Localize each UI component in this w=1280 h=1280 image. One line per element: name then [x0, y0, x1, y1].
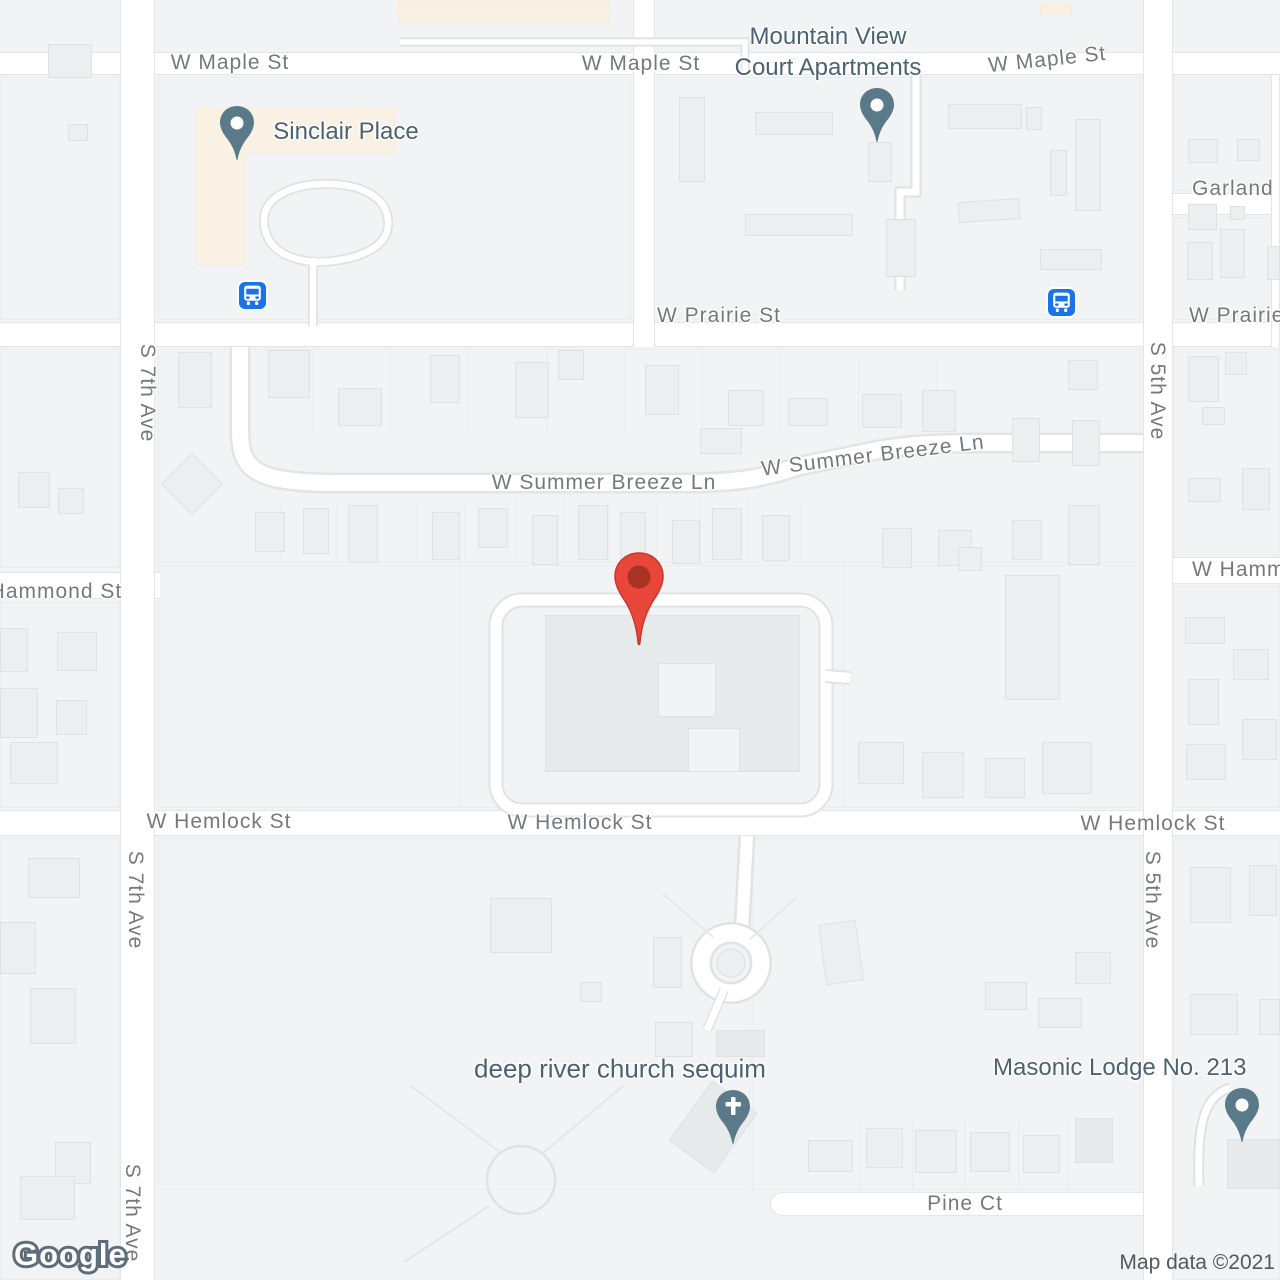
building [0, 688, 38, 738]
building [1242, 468, 1270, 510]
building [948, 104, 1022, 129]
street-label-w-hammond-st: W Hammond St [1192, 558, 1280, 582]
building [1072, 420, 1100, 466]
building [56, 700, 87, 735]
svg-text:Google: Google [14, 1237, 127, 1272]
bus-stop-icon[interactable] [1048, 289, 1075, 316]
building [578, 505, 608, 560]
building [30, 988, 76, 1044]
building [788, 398, 828, 426]
street-label-w-hemlock-st: W Hemlock St [146, 810, 291, 834]
building [255, 512, 285, 552]
building [728, 390, 764, 426]
building [1075, 952, 1111, 984]
building [1190, 994, 1238, 1035]
building [10, 742, 58, 784]
building [653, 937, 682, 988]
bus-stop-icon[interactable] [239, 282, 266, 309]
selected-location-red-pin[interactable] [611, 550, 667, 655]
map-data-attribution: Map data ©2021 [1119, 1251, 1275, 1275]
street-label-w-prairie-st: W Prairie St [1189, 304, 1280, 328]
building [700, 428, 742, 454]
building [1188, 356, 1219, 402]
building [915, 1130, 957, 1173]
building [478, 508, 508, 548]
church-pin[interactable] [713, 1088, 753, 1151]
building [1188, 679, 1219, 725]
street-label-garland-pl: Garland Pl [1192, 177, 1280, 201]
building [1012, 418, 1040, 462]
poi-label-masonic-lodge[interactable]: Masonic Lodge No. 213 [993, 1054, 1247, 1082]
building [430, 355, 460, 403]
building-courtyard [688, 728, 740, 772]
building [970, 1132, 1010, 1172]
building-courtyard [658, 663, 716, 717]
building [28, 858, 80, 898]
building [1237, 139, 1260, 161]
building [1220, 229, 1245, 278]
building [1050, 150, 1067, 196]
building [922, 752, 964, 798]
building [886, 219, 916, 277]
map-canvas[interactable]: W Maple St W Maple St W Maple St W Prair… [0, 0, 1280, 1280]
poi-label-mountain-view-court-apartments[interactable]: Mountain View Court Apartments [735, 21, 922, 83]
street-label-s-7th-ave: S 7th Ave [135, 344, 159, 443]
building [68, 124, 88, 141]
building [985, 982, 1027, 1010]
building [655, 1022, 693, 1057]
street-label-w-hemlock-st: W Hemlock St [507, 811, 652, 835]
building [515, 362, 549, 418]
building [1023, 1135, 1060, 1173]
building [866, 1128, 903, 1168]
building [1267, 246, 1280, 280]
building [755, 112, 833, 135]
street-label-w-hemlock-st: W Hemlock St [1080, 812, 1225, 836]
building [745, 214, 853, 236]
building [1188, 478, 1221, 502]
building [922, 390, 956, 432]
building [645, 365, 679, 415]
building [1230, 206, 1245, 220]
building [1068, 505, 1100, 565]
building [862, 394, 902, 428]
building [0, 628, 28, 672]
building [679, 97, 705, 182]
building [20, 1176, 75, 1220]
building [348, 505, 378, 563]
building [58, 488, 84, 514]
poi-label-sinclair-place[interactable]: Sinclair Place [273, 118, 418, 146]
building [558, 350, 584, 380]
building [1249, 865, 1277, 916]
building [1202, 407, 1225, 425]
building [303, 508, 329, 554]
building [1075, 1118, 1113, 1163]
building [1026, 107, 1042, 130]
building [1188, 204, 1217, 230]
building [580, 982, 602, 1002]
building [1190, 867, 1231, 923]
building [858, 742, 904, 784]
building [18, 472, 50, 508]
building [178, 352, 212, 408]
building [1038, 998, 1082, 1028]
street-label-s-7th-ave: S 7th Ave [123, 851, 147, 950]
building [1040, 249, 1102, 270]
building [48, 44, 92, 78]
poi-label-line1: Mountain View [735, 21, 922, 52]
building [1242, 719, 1277, 760]
street-label-w-prairie-st: W Prairie St [657, 304, 781, 328]
building [338, 388, 382, 426]
building [1186, 744, 1226, 780]
street-label-s-5th-ave: S 5th Ave [1140, 851, 1164, 950]
building [57, 632, 97, 671]
masonic-lodge-pin[interactable] [1222, 1086, 1262, 1149]
building [808, 1140, 853, 1172]
building [762, 515, 790, 561]
poi-label-line2: Court Apartments [735, 52, 922, 83]
building [532, 515, 558, 565]
building [1233, 649, 1269, 680]
building [712, 508, 742, 560]
building [1068, 360, 1098, 390]
building [1042, 742, 1092, 794]
street-label-pine-ct: Pine Ct [927, 1192, 1003, 1216]
building [672, 520, 700, 564]
building [268, 350, 310, 398]
street-label-w-maple-st: W Maple St [171, 51, 290, 75]
google-logo[interactable]: Google [10, 1232, 140, 1280]
building [1075, 119, 1101, 211]
building [985, 758, 1025, 798]
building [958, 547, 982, 571]
poi-label-deep-river-church-sequim[interactable]: deep river church sequim [474, 1054, 766, 1085]
building [957, 198, 1020, 223]
street-label-s-5th-ave: S 5th Ave [1145, 342, 1169, 441]
street-label-w-summer-breeze-ln: W Summer Breeze Ln [492, 471, 717, 495]
building [1185, 617, 1225, 644]
building [1012, 520, 1042, 560]
street-label-w-hammond-st: W Hammond St [0, 580, 122, 604]
mountain-view-court-apartments-pin[interactable] [857, 86, 897, 149]
building [882, 528, 912, 568]
building [1187, 242, 1213, 280]
building [1188, 139, 1218, 163]
building [0, 922, 36, 974]
sinclair-place-pin[interactable] [217, 104, 257, 167]
building [490, 898, 552, 953]
building [1005, 575, 1060, 700]
street-label-w-maple-st: W Maple St [582, 52, 701, 76]
building [1259, 999, 1280, 1035]
building [432, 512, 460, 560]
building [1225, 352, 1247, 375]
